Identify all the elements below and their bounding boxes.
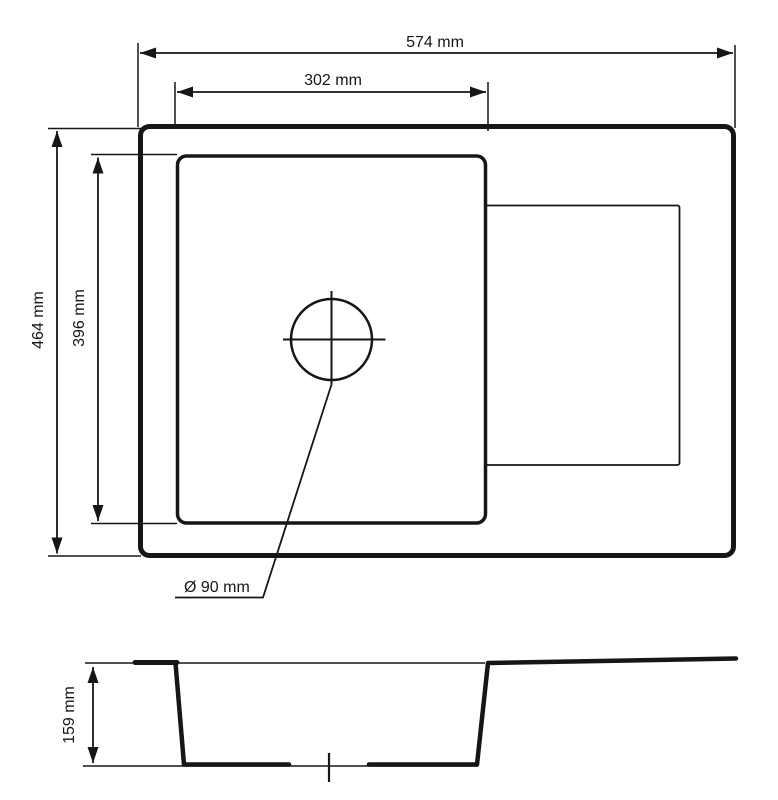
overall-depth-label: 464 mm: [30, 291, 47, 349]
bowl-width-label: 302 mm: [304, 72, 362, 89]
drain-diameter-label: Ø 90 mm: [184, 579, 250, 596]
dimension-bowl-height: 159 mm: [61, 667, 93, 763]
dimension-bowl-width: 302 mm: [175, 72, 488, 131]
dimension-bowl-depth: 396 mm: [71, 155, 177, 524]
top-view: Ø 90 mm 574 mm 302 mm 464 mm: [30, 34, 735, 598]
bowl-depth-label: 396 mm: [71, 289, 88, 347]
section-view: 159 mm: [61, 659, 736, 783]
dimension-overall-width: 574 mm: [138, 34, 735, 128]
drainer-outline: [455, 206, 680, 466]
profile-left-wall-and-bottom: [176, 663, 290, 765]
overall-width-label: 574 mm: [406, 34, 464, 51]
bowl-height-label: 159 mm: [61, 686, 78, 744]
profile-bottom-right-wall-and-drainer: [369, 659, 736, 765]
sink-technical-drawing: Ø 90 mm 574 mm 302 mm 464 mm: [0, 0, 778, 800]
